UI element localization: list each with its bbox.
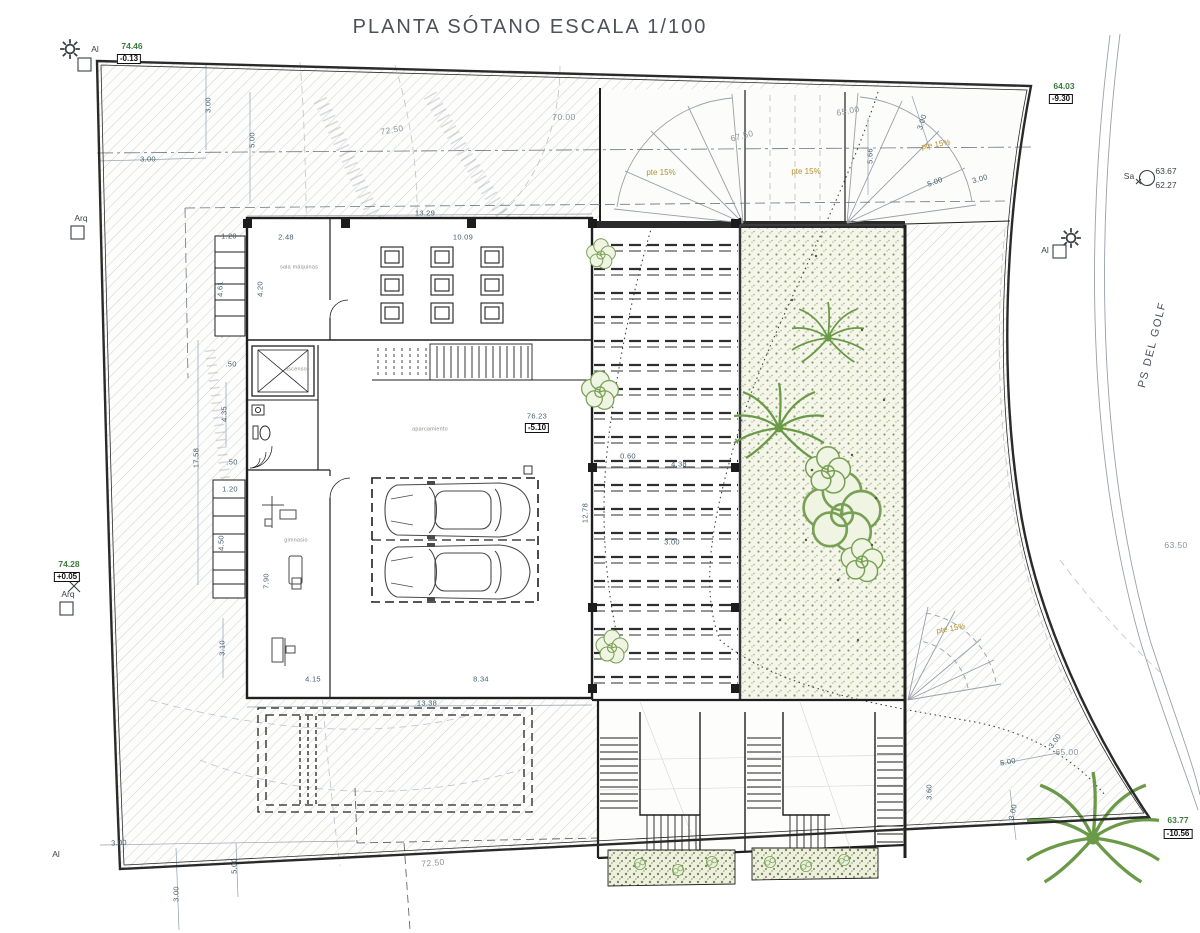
dimension-label: 1.20 bbox=[221, 232, 237, 240]
room-label: aparcamiento bbox=[412, 427, 448, 433]
dimension-label: 17.58 bbox=[192, 448, 200, 468]
dimension-label: 4.20 bbox=[256, 281, 264, 297]
slope-label: pte 15% bbox=[921, 139, 951, 152]
dimension-label: 7.90 bbox=[262, 573, 270, 589]
dimension-label: 3.00 bbox=[916, 113, 928, 130]
marker-label: Sa bbox=[1124, 172, 1134, 181]
level-value: 64.03 bbox=[1053, 82, 1074, 91]
level-box: +0.05 bbox=[54, 572, 80, 582]
dimension-label: 1.20 bbox=[222, 485, 238, 493]
dimension-label: 5.66 bbox=[866, 148, 874, 164]
floor-plan-canvas: PLANTA SÓTANO ESCALA 1/100 74.46-0.13AlA… bbox=[0, 0, 1200, 933]
slope-label: pte 15% bbox=[646, 169, 675, 177]
dimension-label: 4.50 bbox=[217, 535, 225, 551]
dimension-label: 13.38 bbox=[417, 699, 437, 707]
dimension-label: 2.48 bbox=[278, 233, 294, 241]
dimension-label: 8.34 bbox=[473, 675, 489, 683]
marker-label: 63.67 bbox=[1155, 167, 1176, 176]
dimension-label: 0.60 bbox=[620, 452, 636, 460]
dimension-label: 3.00 bbox=[172, 886, 180, 902]
marker-label: Al bbox=[91, 45, 99, 54]
dimension-label: 3.00 bbox=[140, 155, 156, 163]
dimension-label: 13.29 bbox=[415, 209, 435, 217]
dimension-label: 5.00 bbox=[1000, 757, 1017, 767]
marker-label: 62.27 bbox=[1155, 181, 1176, 190]
dimension-label: 5.00 bbox=[230, 858, 238, 874]
room-label: gimnasio bbox=[284, 538, 308, 544]
dimension-label: 3.00 bbox=[664, 538, 680, 546]
marker-label: Al bbox=[52, 850, 60, 859]
dimension-label: 4.15 bbox=[305, 675, 321, 683]
level-box: -0.13 bbox=[117, 54, 141, 64]
room-label: ascensor bbox=[285, 367, 309, 373]
marker-label: Al bbox=[1041, 246, 1049, 255]
level-value: 74.28 bbox=[58, 560, 79, 569]
level-box: -9.30 bbox=[1049, 94, 1073, 104]
marker-label: Arq bbox=[61, 590, 74, 599]
dimension-label: 3.60 bbox=[925, 784, 933, 800]
marker-label: Arq bbox=[74, 214, 87, 223]
slope-label: pte 15% bbox=[791, 168, 820, 176]
street-label: PS DEL GOLF bbox=[1137, 301, 1169, 389]
dimension-label: 3.00 bbox=[204, 97, 212, 113]
dimension-label: 5.00 bbox=[926, 176, 943, 188]
dimension-label: .50 bbox=[226, 458, 237, 466]
dimension-label: 3.00 bbox=[971, 173, 988, 184]
contour-label: 72.50 bbox=[380, 124, 404, 136]
dimension-label: .50 bbox=[225, 360, 236, 368]
dimension-label: 4.38 bbox=[671, 460, 687, 468]
contour-label: 70.00 bbox=[552, 113, 575, 122]
level-box: -5.10 bbox=[525, 423, 549, 433]
contour-label: 72.50 bbox=[421, 858, 445, 868]
level-value: 63.77 bbox=[1167, 816, 1188, 825]
level-value: 74.46 bbox=[121, 42, 142, 51]
dimension-label: 3.00 bbox=[111, 839, 127, 847]
dimension-label: 5.00 bbox=[248, 132, 256, 148]
dimension-label: 3.10 bbox=[218, 640, 226, 656]
slope-label: pte 15% bbox=[936, 623, 966, 636]
dimension-label: 10.09 bbox=[453, 233, 473, 241]
dimension-label: 76.23 bbox=[527, 412, 547, 420]
contour-label: 65.00 bbox=[1055, 748, 1078, 757]
dimension-label: 4.61 bbox=[216, 281, 224, 297]
contour-label: 65.00 bbox=[836, 105, 860, 117]
contour-label: 67.50 bbox=[730, 129, 755, 143]
annotation-layer: 74.46-0.13AlArq74.28+0.05ArqAl64.03-9.30… bbox=[0, 0, 1200, 933]
room-label: sala máquinas bbox=[280, 265, 318, 271]
contour-label: 63.50 bbox=[1164, 541, 1187, 550]
dimension-label: 12.78 bbox=[581, 503, 589, 523]
level-box: -10.56 bbox=[1164, 829, 1193, 839]
dimension-label: 3.00 bbox=[1008, 803, 1019, 820]
dimension-label: 4.35 bbox=[220, 406, 228, 422]
